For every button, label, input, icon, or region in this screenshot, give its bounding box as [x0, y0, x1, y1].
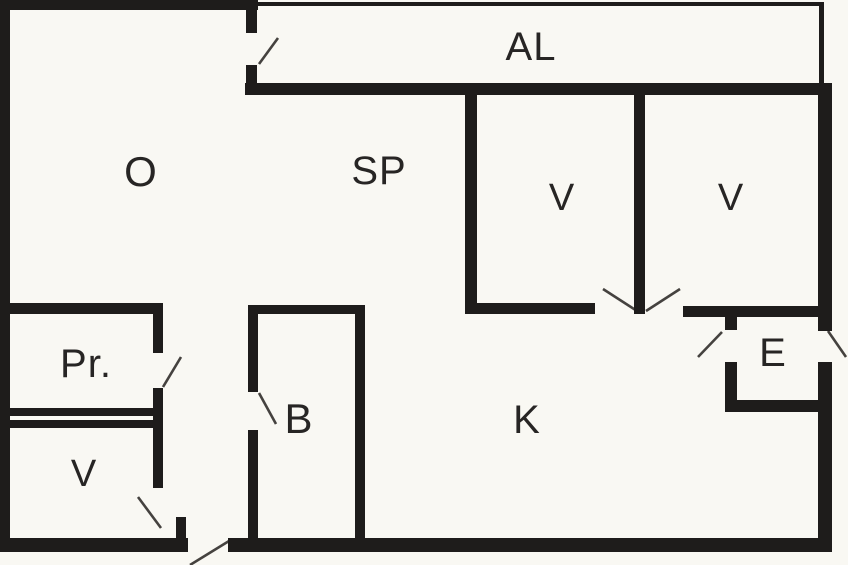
outer-top-wall [0, 0, 258, 10]
room-label-v-top-2: V [718, 179, 744, 217]
b-right-wall [355, 305, 365, 538]
room-label-o: O [124, 151, 158, 193]
v-bottom-door-stub [176, 517, 186, 540]
room-label-al: AL [506, 27, 557, 67]
room-label-pr: Pr. [60, 344, 112, 384]
b-top-wall [248, 305, 363, 314]
outer-left-wall [0, 0, 10, 552]
outer-right-wall-lower [818, 362, 832, 552]
v2-bottom-e-top-wall [683, 306, 832, 317]
v1-bottom-wall [465, 303, 595, 314]
pr-right-wall-lower [153, 388, 163, 488]
door-swing-main-entrance [190, 541, 229, 565]
outer-bottom-wall-right [228, 538, 832, 552]
balcony-divider-upper [246, 0, 257, 33]
pr-top-wall [0, 303, 163, 314]
door-swing-b [259, 393, 276, 424]
pr-bottom-wall [0, 408, 163, 416]
outer-right-wall-upper [818, 83, 832, 331]
floor-plan: ALOSPVVPr.VBKE [0, 0, 848, 565]
room-label-v-top-1: V [549, 179, 575, 217]
pr-right-wall-upper [153, 303, 163, 353]
door-swing-v2 [646, 289, 680, 311]
balcony-divider-lower [246, 65, 257, 95]
b-left-wall-upper [248, 305, 258, 392]
e-bottom-wall [725, 400, 825, 412]
room-label-e: E [759, 333, 787, 373]
balcony-top-wall-thin [257, 2, 823, 6]
e-left-wall-stub [725, 317, 737, 330]
door-swing-pr [163, 357, 181, 387]
b-left-wall-lower [248, 430, 258, 538]
door-swing-v1 [603, 289, 637, 311]
door-swing-e-exterior [828, 331, 846, 357]
v1-v2-divider [634, 95, 645, 314]
v-bottom-top-wall [6, 420, 163, 428]
room-label-sp: SP [351, 151, 406, 191]
outer-bottom-wall-left [0, 538, 188, 552]
door-swing-e-inner [698, 332, 722, 357]
balcony-right-wall-thin [819, 2, 824, 85]
room-label-b: B [284, 398, 313, 440]
room-label-k: K [513, 400, 541, 440]
sp-v1-divider [465, 95, 477, 313]
door-swing-v-bottom [138, 497, 161, 528]
room-label-v-bottom: V [71, 455, 97, 493]
balcony-bottom-wall [245, 83, 832, 95]
door-swing-balcony [259, 38, 278, 64]
